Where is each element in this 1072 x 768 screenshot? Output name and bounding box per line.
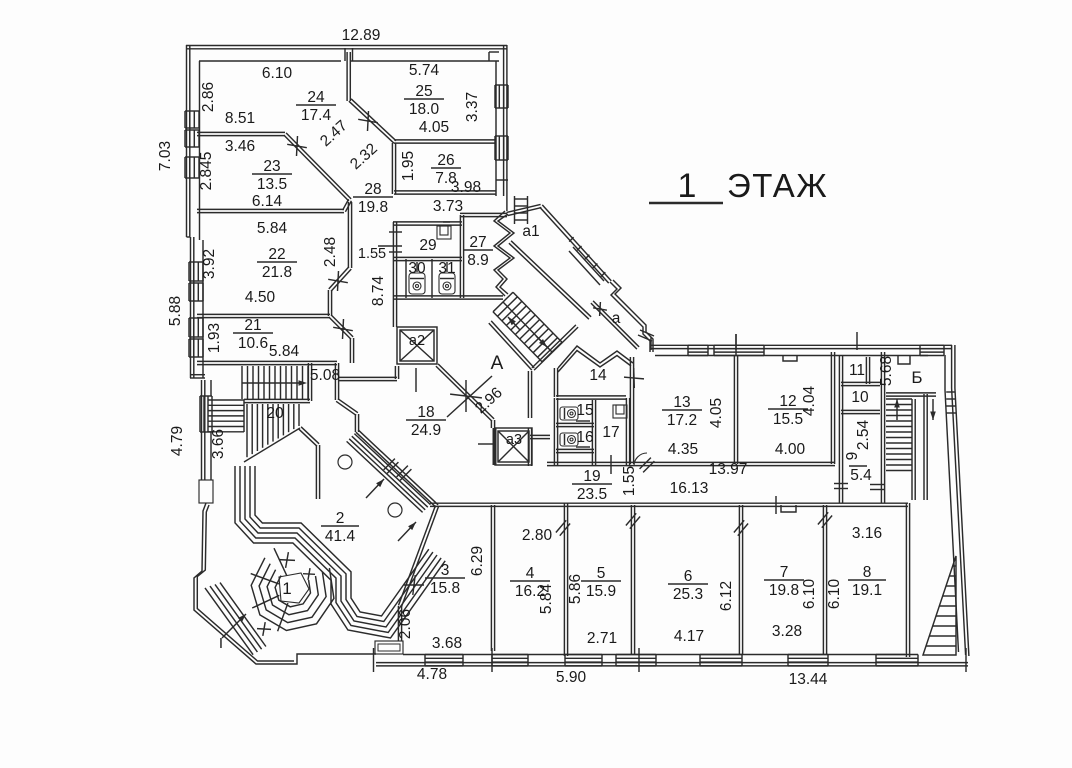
svg-text:29: 29 [419,237,436,254]
svg-text:5.74: 5.74 [409,62,440,79]
svg-text:1: 1 [282,579,291,598]
svg-text:А: А [491,353,504,374]
svg-text:15.8: 15.8 [430,580,460,597]
svg-text:1: 1 [678,167,697,205]
svg-text:3.28: 3.28 [772,623,802,640]
svg-text:4.04: 4.04 [801,386,818,417]
svg-text:4: 4 [526,565,535,582]
svg-text:25.3: 25.3 [673,586,703,603]
svg-text:5.84: 5.84 [257,220,288,237]
svg-text:а2: а2 [409,333,425,349]
svg-text:7: 7 [780,564,789,581]
svg-text:10: 10 [851,389,869,406]
svg-text:а3: а3 [506,432,522,448]
svg-text:3.16: 3.16 [852,525,882,542]
svg-text:4.00: 4.00 [775,441,806,458]
svg-text:5.84: 5.84 [538,584,555,615]
svg-text:17.4: 17.4 [301,107,332,124]
svg-text:13.97: 13.97 [709,461,748,478]
svg-text:30: 30 [408,260,426,277]
svg-text:5.88: 5.88 [167,296,184,326]
svg-text:3.98: 3.98 [451,179,481,196]
svg-text:9: 9 [844,452,861,461]
svg-text:2.80: 2.80 [522,527,553,544]
svg-text:17.2: 17.2 [667,412,697,429]
svg-text:3.46: 3.46 [225,138,255,155]
svg-text:4.05: 4.05 [708,398,725,428]
svg-text:2: 2 [336,510,345,527]
svg-text:3.92: 3.92 [201,249,218,279]
svg-text:10.6: 10.6 [238,335,268,352]
svg-text:2.48: 2.48 [322,237,339,267]
svg-text:24: 24 [307,89,325,106]
svg-text:6.10: 6.10 [262,65,293,82]
svg-text:6.10: 6.10 [801,579,818,610]
svg-text:12.89: 12.89 [342,27,381,44]
svg-text:6: 6 [684,568,693,585]
svg-text:4.17: 4.17 [674,628,704,645]
svg-text:24.9: 24.9 [411,422,441,439]
svg-text:13.5: 13.5 [257,176,287,193]
svg-text:23: 23 [263,158,280,175]
svg-text:11: 11 [849,362,865,379]
svg-text:а1: а1 [522,223,539,240]
svg-text:I: I [219,635,223,652]
svg-text:31: 31 [438,260,455,277]
svg-text:2.845: 2.845 [198,152,215,191]
svg-text:5: 5 [597,565,606,582]
svg-text:а: а [612,310,621,327]
svg-text:7.03: 7.03 [157,141,174,171]
svg-text:16: 16 [576,429,593,446]
svg-text:1.93: 1.93 [206,323,223,353]
svg-text:21.8: 21.8 [262,264,292,281]
svg-text:20: 20 [266,405,284,422]
svg-text:3.37: 3.37 [464,92,481,122]
svg-text:3.68: 3.68 [432,635,462,652]
svg-text:1.55: 1.55 [621,466,638,496]
svg-text:16.13: 16.13 [670,480,709,497]
svg-text:19.1: 19.1 [852,582,882,599]
svg-text:14: 14 [589,367,607,384]
svg-text:13: 13 [673,394,690,411]
svg-text:13.44: 13.44 [789,671,828,688]
svg-text:1.95: 1.95 [400,151,417,181]
svg-text:ЭТАЖ: ЭТАЖ [727,167,828,204]
svg-text:15.5: 15.5 [773,411,803,428]
svg-text:6.14: 6.14 [252,193,283,210]
svg-text:1.55: 1.55 [358,246,386,262]
svg-text:23.5: 23.5 [577,486,607,503]
svg-text:Б: Б [911,368,922,387]
svg-text:5.4: 5.4 [850,467,872,484]
svg-text:25: 25 [415,83,432,100]
svg-text:27: 27 [469,234,486,251]
svg-text:18: 18 [417,404,434,421]
svg-text:12: 12 [779,393,796,410]
svg-text:5.90: 5.90 [556,669,587,686]
svg-text:2.71: 2.71 [587,630,617,647]
svg-text:8.74: 8.74 [370,276,387,307]
svg-text:4.35: 4.35 [668,441,698,458]
svg-text:4.05: 4.05 [419,119,449,136]
svg-text:5.84: 5.84 [269,343,300,360]
svg-text:28: 28 [364,181,381,198]
svg-text:19: 19 [583,468,600,485]
svg-text:4.50: 4.50 [245,289,276,306]
svg-text:6.12: 6.12 [718,581,735,611]
svg-text:3.73: 3.73 [433,198,463,215]
svg-text:21: 21 [244,317,261,334]
svg-text:6.29: 6.29 [469,546,486,576]
svg-text:5.68: 5.68 [878,356,895,386]
svg-text:26: 26 [437,152,454,169]
svg-text:5.86: 5.86 [567,574,584,604]
svg-text:15: 15 [576,402,593,419]
svg-text:4.78: 4.78 [417,666,447,683]
svg-text:8.51: 8.51 [225,110,255,127]
svg-text:2.86: 2.86 [200,82,217,112]
svg-text:8.9: 8.9 [467,252,489,269]
svg-text:4.79: 4.79 [169,426,186,456]
svg-text:2.06: 2.06 [397,609,414,639]
svg-text:17: 17 [602,424,619,441]
svg-text:2.54: 2.54 [855,420,872,451]
svg-text:22: 22 [268,246,285,263]
svg-text:19.8: 19.8 [358,199,388,216]
svg-text:41.4: 41.4 [325,528,356,545]
svg-text:15.9: 15.9 [586,583,616,600]
svg-text:3.66: 3.66 [210,429,227,459]
svg-text:3: 3 [441,562,450,579]
svg-text:18.0: 18.0 [409,101,440,118]
svg-text:5.08: 5.08 [310,367,340,384]
svg-text:19.8: 19.8 [769,582,799,599]
svg-text:8: 8 [863,564,872,581]
svg-text:6.10: 6.10 [826,579,843,610]
